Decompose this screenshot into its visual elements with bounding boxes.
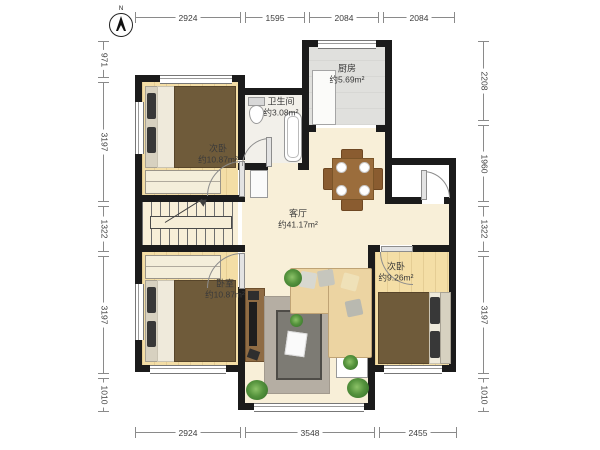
- dim-right-3-value: 1322: [479, 217, 488, 242]
- plate-icon: [359, 162, 370, 173]
- kitchen-label: 厨房 约5.69m²: [330, 64, 365, 85]
- bedroom-top-left-side-window: [135, 102, 144, 154]
- washing-machine-icon: [250, 170, 268, 198]
- entrance-door-arc: [423, 171, 450, 198]
- bedroom-top-left-label: 次卧 约10.87m²: [198, 144, 238, 165]
- bedroom-bottom-left-window: [150, 365, 226, 374]
- dim-left-4: 3197: [98, 256, 109, 374]
- sofa-pillow: [317, 269, 335, 287]
- plate-icon: [359, 185, 370, 196]
- compass: N: [104, 6, 138, 44]
- wall-segment: [135, 195, 245, 202]
- dim-top-1-value: 2924: [176, 13, 201, 22]
- dim-left-1: 971: [98, 41, 109, 78]
- dining-chair: [341, 199, 363, 211]
- dim-right-4-value: 3197: [479, 303, 488, 328]
- dim-left-5: 1010: [98, 378, 109, 412]
- dim-left-3-value: 1322: [99, 217, 108, 242]
- room-name: 次卧: [379, 262, 414, 273]
- pillow: [147, 93, 156, 119]
- plant-icon: [343, 355, 358, 370]
- wall-segment: [385, 40, 392, 204]
- kitchen-window: [318, 40, 376, 49]
- dim-right-5: 1010: [478, 378, 489, 412]
- sofa-pillow: [345, 299, 364, 318]
- room-name: 客厅: [278, 209, 318, 220]
- living-room-window: [254, 403, 364, 412]
- tv-icon: [249, 302, 257, 346]
- dim-top-3-value: 2084: [332, 13, 357, 22]
- plant-icon: [290, 314, 303, 327]
- wall-segment: [240, 88, 302, 95]
- bathroom-label: 卫生间 约3.08m²: [264, 97, 299, 118]
- dim-top-1: 2924: [135, 12, 241, 23]
- wall-segment: [385, 158, 456, 165]
- dim-bottom-1-value: 2924: [176, 428, 201, 437]
- wall-segment: [376, 125, 392, 132]
- living-room-label: 客厅 约41.17m²: [278, 209, 318, 230]
- wall-segment: [298, 163, 309, 170]
- room-area: 约41.17m²: [278, 220, 318, 230]
- pillow: [147, 321, 156, 347]
- papers: [284, 331, 307, 358]
- north-arrow-notch: [118, 25, 124, 31]
- dim-right-1: 2208: [478, 41, 489, 121]
- pillow: [147, 127, 156, 153]
- bedroom-bottom-left-side-window: [135, 284, 144, 340]
- dim-top-4-value: 2084: [407, 13, 432, 22]
- dim-right-2: 1960: [478, 125, 489, 202]
- entrance-door: [421, 170, 427, 200]
- pillow: [430, 331, 440, 358]
- bedroom-bottom-right-door: [381, 246, 413, 252]
- speaker-icon: [248, 291, 259, 300]
- plate-icon: [336, 185, 347, 196]
- wall-segment: [368, 245, 380, 252]
- room-area: 约3.08m²: [264, 108, 299, 118]
- bedroom-bottom-right-label: 次卧 约9.26m²: [379, 262, 414, 283]
- dim-bottom-3: 2455: [379, 427, 457, 438]
- dim-bottom-1: 2924: [135, 427, 241, 438]
- dim-bottom-3-value: 2455: [406, 428, 431, 437]
- compass-circle: [109, 13, 133, 37]
- pillow: [430, 297, 440, 324]
- plant-icon: [347, 378, 369, 398]
- dim-right-3: 1322: [478, 206, 489, 252]
- dim-left-5-value: 1010: [99, 383, 108, 408]
- plant-icon: [284, 269, 302, 287]
- dim-left-4-value: 3197: [99, 303, 108, 328]
- dim-left-3: 1322: [98, 206, 109, 252]
- wall-segment: [302, 40, 309, 170]
- room-name: 厨房: [330, 64, 365, 75]
- dim-left-1-value: 971: [99, 49, 108, 69]
- bedroom-top-left-window: [160, 75, 232, 84]
- dim-bottom-2: 3548: [245, 427, 375, 438]
- room-name: 次卧: [198, 144, 238, 155]
- dim-left-2: 3197: [98, 82, 109, 202]
- dim-bottom-2-value: 3548: [298, 428, 323, 437]
- dim-top-3: 2084: [309, 12, 379, 23]
- dim-right-4: 3197: [478, 256, 489, 374]
- room-area: 约5.69m²: [330, 75, 365, 85]
- staircase-landing: [150, 216, 232, 229]
- bed-headboard: [440, 292, 451, 364]
- pillow: [147, 287, 156, 313]
- dim-top-4: 2084: [383, 12, 455, 23]
- plate-icon: [336, 162, 347, 173]
- dim-left-2-value: 3197: [99, 130, 108, 155]
- bedroom-top-left-door: [239, 161, 245, 197]
- wall-segment: [135, 245, 245, 252]
- wall-segment: [238, 287, 245, 372]
- wall-segment: [302, 125, 316, 132]
- dim-right-5-value: 1010: [479, 383, 488, 408]
- room-name: 卧室: [205, 279, 245, 290]
- room-area: 约9.26m²: [379, 273, 414, 283]
- bed-duvet: [378, 292, 432, 364]
- room-name: 卫生间: [264, 97, 299, 108]
- bedroom-bottom-left-label: 卧室 约10.87m²: [205, 279, 245, 300]
- room-area: 约10.87m²: [198, 155, 238, 165]
- wall-segment: [444, 197, 456, 204]
- wall-segment: [238, 75, 245, 160]
- bedroom-bottom-right-window: [384, 365, 442, 374]
- plant-icon: [246, 380, 268, 400]
- bathtub-inner: [287, 116, 299, 158]
- floor-plan-canvas: N 2924 1595 2084 2084 2924 3548 2455 971…: [0, 0, 600, 450]
- dim-right-2-value: 1960: [479, 151, 488, 176]
- compass-north-label: N: [104, 6, 138, 12]
- dim-right-1-value: 2208: [479, 69, 488, 94]
- dim-top-2: 1595: [245, 12, 305, 23]
- wall-segment: [385, 197, 422, 204]
- bathroom-door: [266, 137, 272, 167]
- dim-top-2-value: 1595: [263, 13, 288, 22]
- room-area: 约10.87m²: [205, 290, 245, 300]
